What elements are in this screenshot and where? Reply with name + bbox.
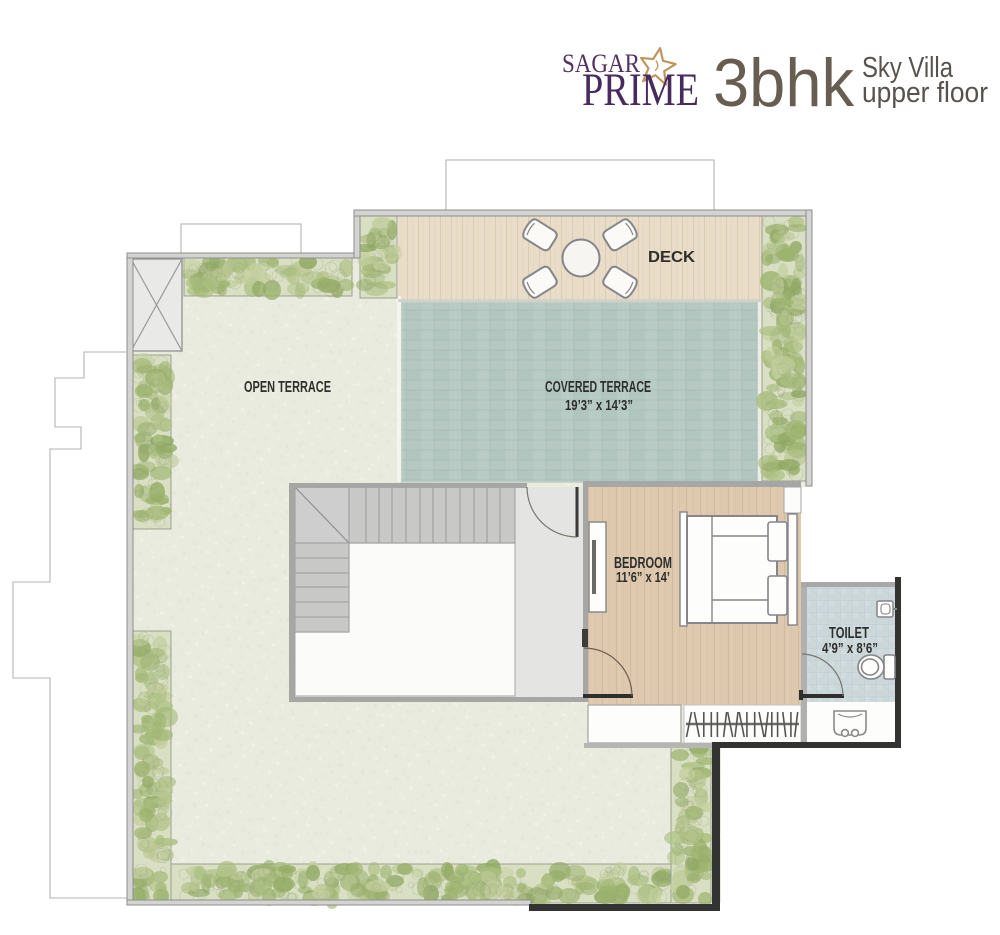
svg-text:TOILET: TOILET (829, 625, 869, 642)
svg-text:upper floor: upper floor (862, 77, 988, 109)
svg-text:3bhk: 3bhk (713, 45, 855, 121)
svg-text:DECK: DECK (648, 249, 695, 266)
svg-text:OPEN TERRACE: OPEN TERRACE (244, 379, 331, 396)
svg-text:4’9” x 8’6”: 4’9” x 8’6” (822, 641, 878, 657)
svg-text:PRIME: PRIME (582, 64, 699, 116)
svg-text:COVERED TERRACE: COVERED TERRACE (545, 379, 651, 396)
svg-text:11’6” x 14’: 11’6” x 14’ (616, 570, 670, 586)
svg-text:19’3” x 14’3”: 19’3” x 14’3” (565, 398, 633, 414)
